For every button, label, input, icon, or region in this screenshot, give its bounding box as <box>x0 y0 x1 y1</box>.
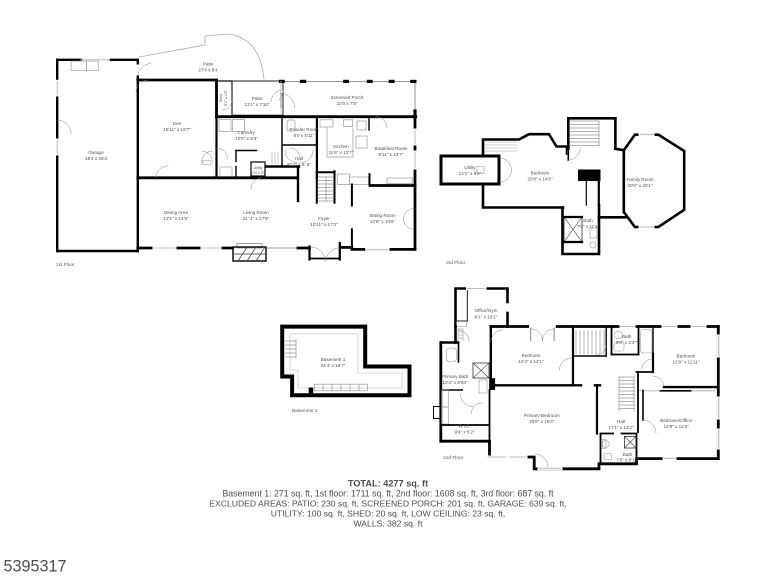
svg-text:Basement 1: Basement 1 <box>292 408 318 414</box>
svg-text:10'11" x 17'0": 10'11" x 17'0" <box>310 222 338 227</box>
svg-text:Bedroom: Bedroom <box>522 353 541 358</box>
svg-text:2nd Floor: 2nd Floor <box>443 455 464 461</box>
svg-text:10'0" x 9'3": 10'0" x 9'3" <box>235 136 258 141</box>
svg-text:3rd Floor: 3rd Floor <box>446 260 466 266</box>
svg-text:5395317: 5395317 <box>4 558 67 576</box>
svg-text:Laundry: Laundry <box>238 130 255 135</box>
svg-text:12'0 x 3'0: 12'0 x 3'0 <box>250 171 265 175</box>
svg-text:Patio: Patio <box>252 96 263 101</box>
svg-text:Hall: Hall <box>617 419 625 424</box>
svg-text:Kitchen: Kitchen <box>333 144 349 149</box>
svg-text:Sitting Room: Sitting Room <box>369 213 395 218</box>
svg-text:Primary Bedroom: Primary Bedroom <box>524 413 560 418</box>
svg-text:W.I.C.: W.I.C. <box>458 424 471 429</box>
svg-text:Hall: Hall <box>295 156 303 161</box>
svg-text:Bedroom/Office: Bedroom/Office <box>660 418 692 423</box>
svg-text:6'0 x 5'11": 6'0 x 5'11" <box>294 133 315 138</box>
svg-text:Bath: Bath <box>622 334 632 339</box>
svg-text:5'1" x 4'0": 5'1" x 4'0" <box>224 89 228 105</box>
svg-text:Living Room: Living Room <box>243 210 269 215</box>
svg-text:12'4" x 9'04": 12'4" x 9'04" <box>442 380 468 385</box>
svg-text:22'0 x 7'9": 22'0 x 7'9" <box>336 101 357 106</box>
svg-text:Shed: Shed <box>219 94 223 102</box>
svg-text:Family Room: Family Room <box>626 177 653 182</box>
svg-text:9'4" x 5'2": 9'4" x 5'2" <box>454 430 474 435</box>
svg-text:Bath: Bath <box>583 218 593 223</box>
svg-text:Utility: Utility <box>254 166 263 170</box>
svg-text:Office/Gym: Office/Gym <box>475 308 498 313</box>
svg-text:EXCLUDED AREAS: PATIO: 230 sq.: EXCLUDED AREAS: PATIO: 230 sq. ft, SCREE… <box>209 499 566 509</box>
svg-text:8'1" x 10'1": 8'1" x 10'1" <box>475 315 498 320</box>
svg-text:Primary Bath: Primary Bath <box>442 374 469 379</box>
svg-text:14'9" x 12'0": 14'9" x 12'0" <box>664 424 690 429</box>
svg-text:8'0" x 3'4"": 8'0" x 3'4"" <box>616 340 638 345</box>
svg-text:14'4" x 12'1": 14'4" x 12'1" <box>518 359 544 364</box>
svg-text:20'0" x 20'1": 20'0" x 20'1" <box>627 183 653 188</box>
svg-text:Dining Area: Dining Area <box>164 210 188 215</box>
svg-text:13'1" x 14'9": 13'1" x 14'9" <box>163 216 189 221</box>
svg-text:12'8" x 13'6": 12'8" x 13'6" <box>370 219 396 224</box>
svg-text:Utility: Utility <box>464 165 476 170</box>
svg-text:17'1" x 14'2": 17'1" x 14'2" <box>608 425 634 430</box>
svg-text:20'8" x 14'6": 20'8" x 14'6" <box>527 177 553 182</box>
svg-text:Garage: Garage <box>88 150 104 155</box>
svg-text:8'11" x 13'7": 8'11" x 13'7" <box>379 152 404 157</box>
svg-text:21' 4" x 17'6": 21' 4" x 17'6" <box>243 216 270 221</box>
svg-text:Breakfast Room: Breakfast Room <box>375 146 408 151</box>
svg-text:TOTAL: 4277 sq. ft: TOTAL: 4277 sq. ft <box>348 479 428 489</box>
svg-text:1st Floor: 1st Floor <box>56 262 75 268</box>
svg-text:Bath: Bath <box>623 452 633 457</box>
svg-text:12'8" x 11'11": 12'8" x 11'11" <box>672 360 699 365</box>
svg-text:Patio: Patio <box>203 62 214 67</box>
svg-text:7'0" x 8'10": 7'0" x 8'10" <box>616 458 639 463</box>
svg-text:Basement 1: 271 sq. ft, 1st fl: Basement 1: 271 sq. ft, 1st floor: 1711 … <box>222 489 554 499</box>
svg-text:Den: Den <box>173 121 182 126</box>
svg-text:Bedroom: Bedroom <box>531 171 550 176</box>
svg-text:Screened Porch: Screened Porch <box>331 95 364 100</box>
svg-text:WALLS: 382 sq. ft: WALLS: 382 sq. ft <box>354 519 424 529</box>
svg-text:12'1" x 6'2": 12'1" x 6'2" <box>459 171 482 176</box>
svg-text:15'11" x 19'7": 15'11" x 19'7" <box>163 127 191 132</box>
svg-text:Powder Room: Powder Room <box>289 127 318 132</box>
svg-text:11'6" x 13'7": 11'6" x 13'7" <box>329 150 354 155</box>
svg-text:24.4' x 18'7": 24.4' x 18'7" <box>321 363 346 368</box>
svg-text:8'11" x 5' 8": 8'11" x 5' 8" <box>287 162 311 167</box>
svg-text:27'4 x 8'4: 27'4 x 8'4 <box>198 68 218 73</box>
svg-text:7'6" x 11'5": 7'6" x 11'5" <box>577 224 600 229</box>
svg-text:Foyer: Foyer <box>318 216 330 221</box>
svg-text:Bedroom: Bedroom <box>677 354 696 359</box>
svg-text:13'1" x 7'10": 13'1" x 7'10" <box>244 102 270 107</box>
svg-text:18'4 x 28'3: 18'4 x 28'3 <box>85 156 107 161</box>
svg-text:20'6" x 16'4": 20'6" x 16'4" <box>529 419 555 424</box>
svg-text:UTILITY: 100 sq. ft, SHED: 20: UTILITY: 100 sq. ft, SHED: 20 sq. ft, LO… <box>271 509 506 519</box>
svg-text:Basement 1: Basement 1 <box>321 357 346 362</box>
